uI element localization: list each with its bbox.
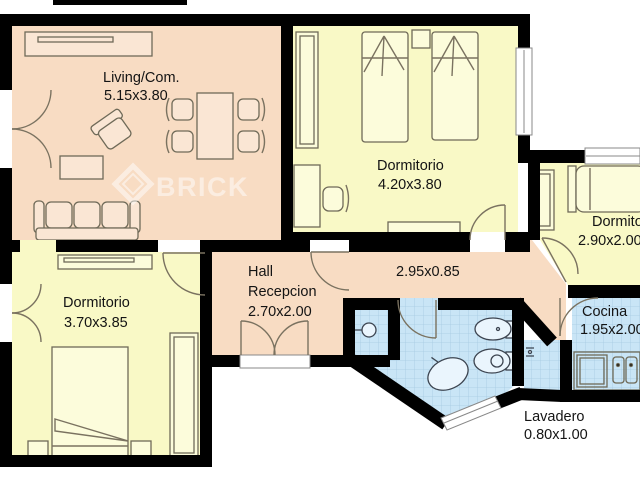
nightstand <box>412 30 430 48</box>
label-dorm3-name: Dormitorio <box>63 295 130 311</box>
wardrobe <box>296 32 318 148</box>
toilet <box>474 349 513 373</box>
label-dorm2-name: Dormitorio <box>592 214 640 230</box>
coffee-table <box>60 156 103 179</box>
double-bed <box>52 347 128 458</box>
single-bed <box>432 32 478 140</box>
window-dorm2 <box>585 148 640 164</box>
headboard <box>568 166 576 212</box>
label-cocina-name: Cocina <box>582 304 628 320</box>
window-dorm1 <box>516 48 532 135</box>
sideboard <box>25 32 152 56</box>
floor-plan: BRICK Living/Com. 5.15x3.80 Dormitorio 4… <box>0 0 640 480</box>
label-dorm1-dims: 4.20x3.80 <box>378 177 442 193</box>
sideboard <box>58 255 152 269</box>
shelf <box>388 222 460 233</box>
label-dorm1-name: Dormitorio <box>377 158 444 174</box>
desk <box>294 165 320 227</box>
label-living-dims: 5.15x3.80 <box>104 88 168 104</box>
label-cocina-dims: 1.95x2.00 <box>580 322 640 338</box>
label-hall-name2: Recepcion <box>248 284 317 300</box>
nightstand <box>131 441 151 457</box>
watermark-text: BRICK <box>156 172 249 202</box>
label-corridor-dims: 2.95x0.85 <box>396 264 460 280</box>
nightstand <box>28 441 48 457</box>
single-bed <box>362 32 408 142</box>
label-hall-name: Hall <box>248 264 273 280</box>
label-hall-dims: 2.70x2.00 <box>248 304 312 320</box>
label-dorm3-dims: 3.70x3.85 <box>64 315 128 331</box>
chimney-notch <box>20 240 56 252</box>
label-lavadero-dims: 0.80x1.00 <box>524 427 588 443</box>
floor-plan-drawing: BRICK Living/Com. 5.15x3.80 Dormitorio 4… <box>0 0 640 480</box>
bidet <box>475 318 513 340</box>
wardrobe <box>170 333 198 457</box>
label-lavadero-name: Lavadero <box>524 409 584 425</box>
label-living-name: Living/Com. <box>103 70 180 86</box>
label-dorm2-dims: 2.90x2.00 <box>578 233 640 249</box>
bed <box>576 166 640 212</box>
entrance-threshold <box>240 355 310 368</box>
sofa <box>34 201 140 240</box>
